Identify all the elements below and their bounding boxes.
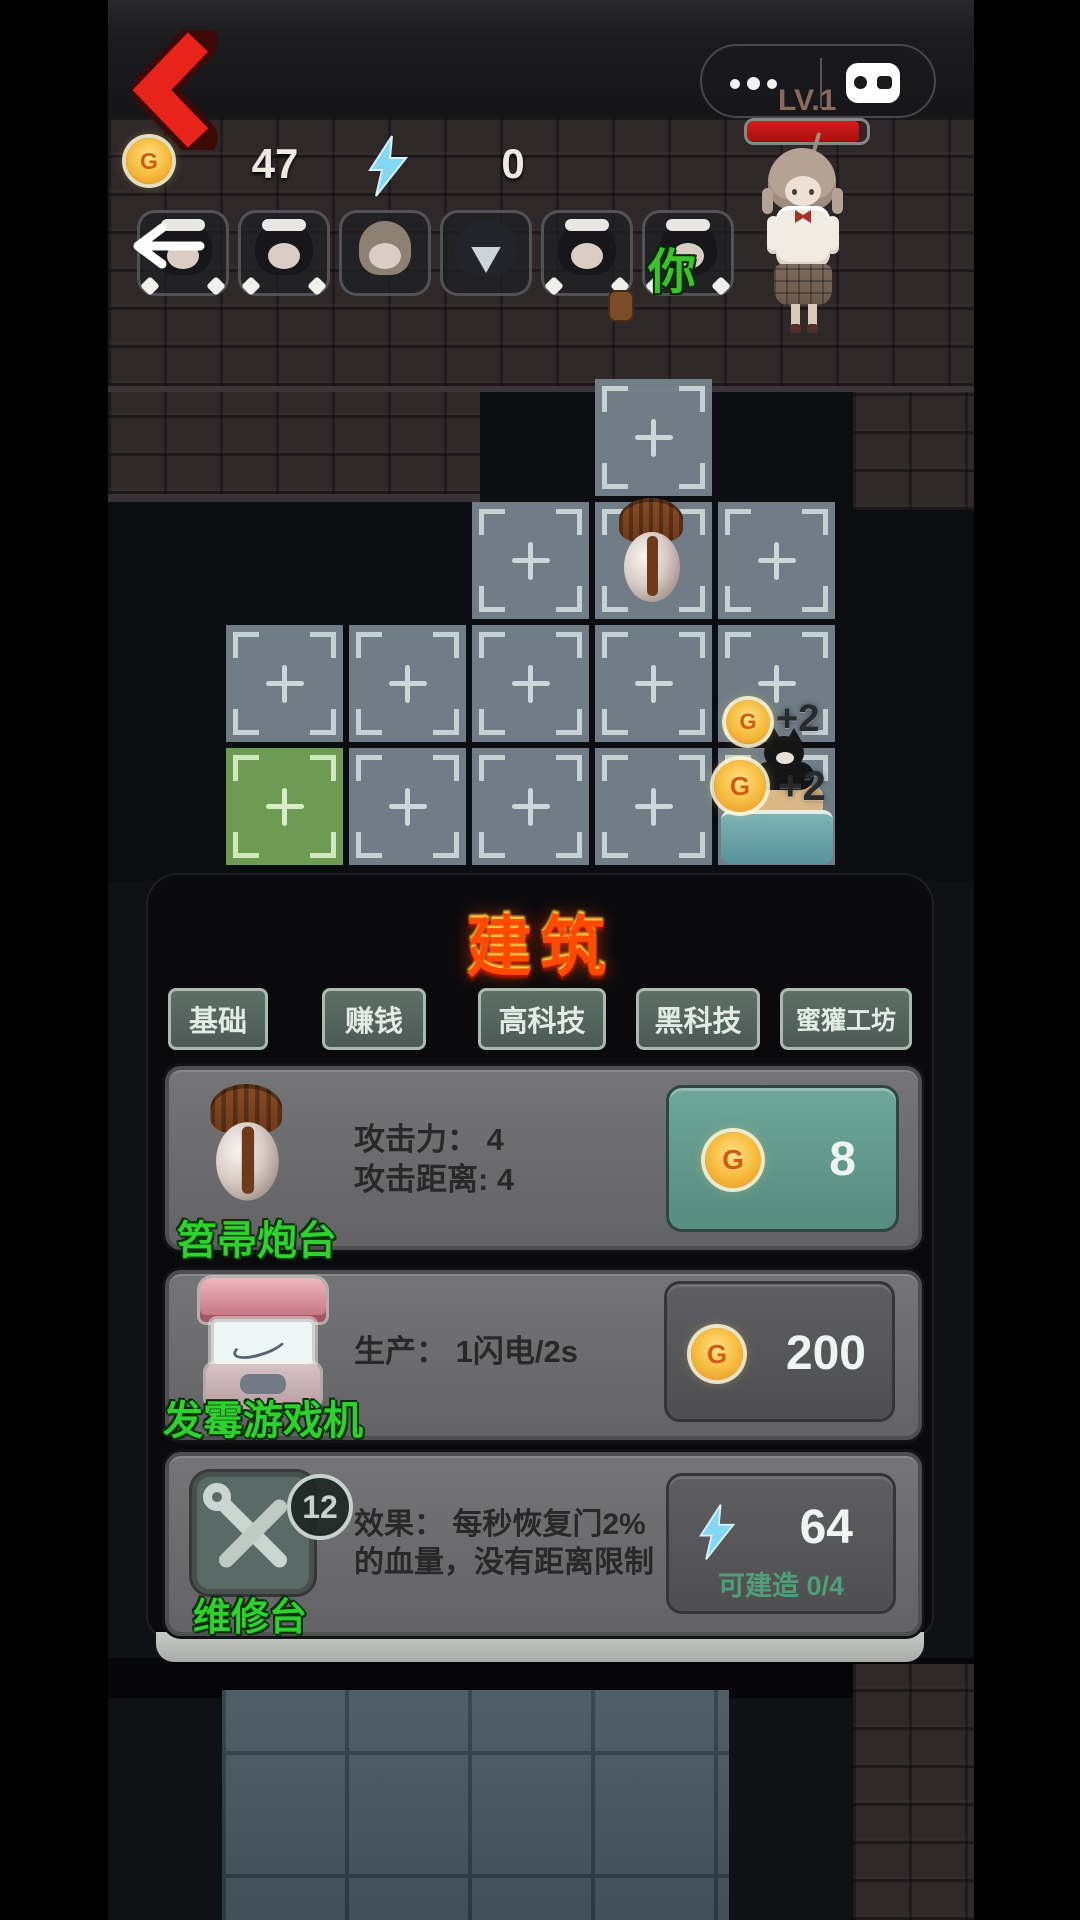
tab-hightech[interactable]: 高科技: [478, 988, 606, 1050]
left-arrow-icon: [122, 222, 206, 275]
building-name: 笤帚炮台: [177, 1208, 337, 1266]
coin-popup-icon: G: [726, 700, 770, 744]
build-tile[interactable]: [349, 625, 466, 742]
broom-turret-icon: [197, 1084, 296, 1203]
hero-sprite: [760, 142, 846, 334]
buildable-note: 可建造 0/4: [669, 1564, 893, 1603]
cost-value: 200: [786, 1326, 866, 1381]
capsule-button: LV.1: [700, 44, 936, 118]
build-tile[interactable]: [472, 625, 589, 742]
build-tile[interactable]: [349, 748, 466, 865]
build-tile[interactable]: [595, 748, 712, 865]
arcade-machine-icon: [195, 1278, 331, 1406]
energy-amount: 0: [468, 140, 558, 188]
tab-basic[interactable]: 基础: [168, 988, 268, 1050]
capsule-divider: [820, 58, 822, 108]
gamepad-icon[interactable]: [846, 63, 900, 103]
broom-turret-sprite[interactable]: [607, 498, 695, 604]
build-tile[interactable]: [595, 379, 712, 496]
coin-popup-icon: G: [714, 760, 766, 812]
building-card-broom-turret[interactable]: 笤帚炮台 攻击力： 4 攻击距离: 4 G 8: [165, 1066, 922, 1250]
count-badge: 12: [287, 1474, 353, 1540]
tab-blacktech[interactable]: 黑科技: [636, 988, 760, 1050]
brick-wall-bottom-right: [853, 1664, 974, 1920]
build-tile[interactable]: [472, 748, 589, 865]
buy-button-broom-turret[interactable]: G 8: [666, 1085, 899, 1232]
avatar-slot-5[interactable]: [541, 210, 633, 296]
you-label: 你: [648, 232, 696, 302]
small-sprite: [608, 290, 634, 322]
gold-amount: 47: [230, 140, 320, 188]
build-tile[interactable]: [472, 502, 589, 619]
gold-coin-icon: G: [126, 138, 172, 184]
build-tile[interactable]: [226, 625, 343, 742]
level-label: LV.1: [778, 84, 836, 118]
building-stats: 攻击力： 4 攻击距离: 4: [354, 1120, 514, 1200]
build-tile[interactable]: [718, 502, 835, 619]
tab-workshop[interactable]: 蜜獾工坊: [780, 988, 912, 1050]
building-card-arcade[interactable]: 发霉游戏机 生产： 1闪电/2s G 200: [165, 1270, 922, 1440]
gold-coin-icon: G: [691, 1328, 743, 1380]
buy-button-arcade[interactable]: G 200: [664, 1281, 895, 1422]
cost-value: 64: [800, 1500, 853, 1555]
building-stats: 生产： 1闪电/2s: [354, 1332, 578, 1372]
menu-dots-icon[interactable]: [730, 77, 784, 90]
building-name: 维修台: [193, 1586, 307, 1641]
panel-title: 建筑: [148, 894, 932, 990]
avatar-slot-3[interactable]: [339, 210, 431, 296]
tab-money[interactable]: 赚钱: [322, 988, 426, 1050]
lightning-icon: [366, 134, 410, 203]
coin-letter: G: [140, 148, 158, 175]
lightning-icon: [697, 1502, 737, 1567]
floor-tiles: [222, 1690, 729, 1920]
health-bar: [744, 118, 870, 145]
build-tile-selected[interactable]: [226, 748, 343, 865]
back-button[interactable]: [118, 30, 228, 150]
buy-button-repair[interactable]: 64 可建造 0/4: [666, 1473, 896, 1614]
game-screen: G 47 0 LV.1 你: [0, 0, 1080, 1920]
coin-popup-text: +2: [778, 762, 826, 810]
brick-wall-right: [853, 392, 974, 510]
avatar-slot-4[interactable]: [440, 210, 532, 296]
coin-popup-text: +2: [776, 698, 819, 741]
building-card-repair[interactable]: 12 维修台 效果： 每秒恢复门2% 的血量，没有距离限制 64 可建造 0/4: [165, 1452, 922, 1636]
building-name: 发霉游戏机: [163, 1388, 363, 1446]
building-stats: 效果： 每秒恢复门2% 的血量，没有距离限制: [354, 1506, 654, 1582]
avatar-slot-2[interactable]: [238, 210, 330, 296]
gold-coin-icon: G: [705, 1132, 761, 1188]
build-tile[interactable]: [595, 625, 712, 742]
health-bar-fill: [747, 121, 859, 142]
cost-value: 8: [829, 1132, 856, 1187]
brick-wall-left: [108, 392, 480, 502]
